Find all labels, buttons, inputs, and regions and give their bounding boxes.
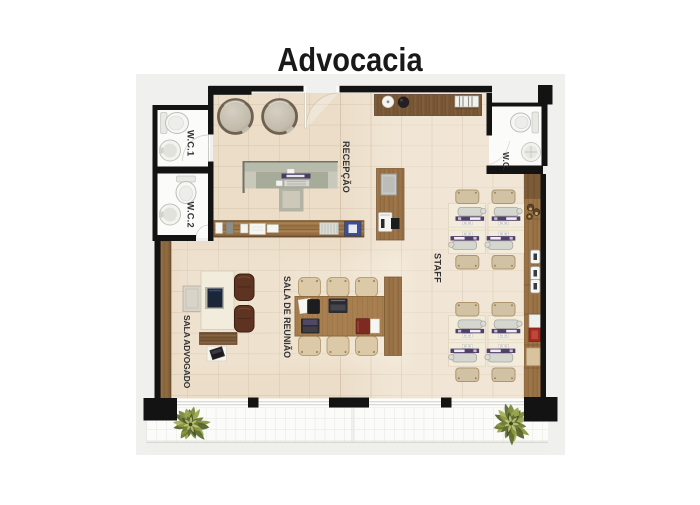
svg-text:SALA DE REUNIÃO: SALA DE REUNIÃO	[282, 276, 292, 358]
svg-text:W.C.2: W.C.2	[186, 202, 196, 228]
svg-text:RECEPÇÃO: RECEPÇÃO	[341, 141, 351, 193]
svg-text:STAFF: STAFF	[433, 253, 443, 283]
svg-text:W.C.1: W.C.1	[186, 130, 196, 156]
svg-text:W.C.: W.C.	[501, 152, 510, 171]
svg-text:SALA ADVOGADO: SALA ADVOGADO	[182, 315, 192, 389]
